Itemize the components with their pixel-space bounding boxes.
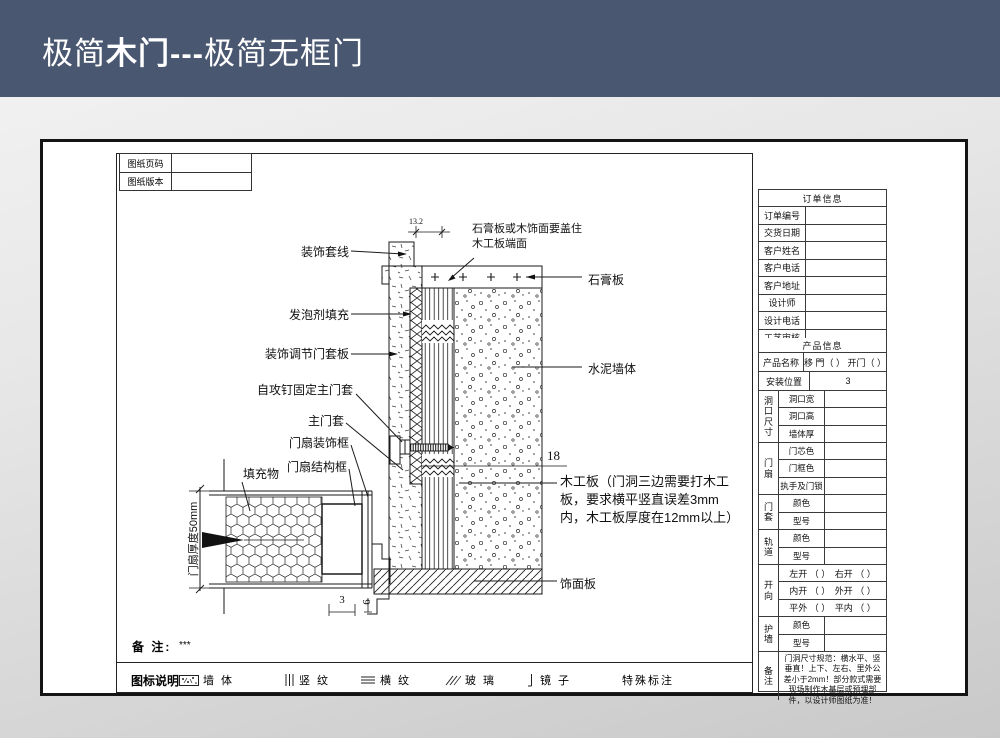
row-label: 颜色 [779, 530, 825, 547]
horizontal-grain-icon [360, 675, 376, 685]
row-label: 型号 [779, 548, 825, 565]
glass-icon [445, 675, 461, 686]
callout-foam-fill: 发泡剂填充 [289, 306, 349, 323]
meta-value [172, 173, 251, 190]
callout-plywood-note: 木工板（门洞三边需要打木工板，要求横平竖直误差3mm内，木工板厚度在12mm以上… [560, 473, 742, 527]
row-label: 颜色 [779, 495, 825, 512]
row-value [806, 242, 886, 259]
legend-item-glass: 玻 璃 [445, 672, 496, 688]
callout-leaf-deco-frame: 门扇装饰框 [289, 434, 349, 451]
table-row: 门芯色 [779, 443, 886, 459]
row-value [825, 635, 886, 652]
row-value [825, 460, 886, 476]
dimension-top: 13.2 [400, 217, 432, 226]
row-label: 产品名称 [759, 353, 804, 371]
row-label: 门框色 [779, 460, 825, 476]
callout-main-jamb: 主门套 [308, 412, 344, 429]
group-label: 备注 [759, 652, 779, 700]
table-row: 客户地址 [759, 276, 886, 294]
row-value [825, 391, 886, 407]
group-door-jamb: 门套 颜色 型号 [759, 494, 886, 529]
row-label: 交货日期 [759, 225, 806, 242]
legend-label: 特殊标注 [622, 672, 674, 688]
group-label: 轨道 [759, 530, 779, 564]
table-row: 颜色 [779, 617, 886, 634]
callout-filler: 填充物 [243, 465, 279, 482]
notes-value: *** [179, 640, 191, 651]
row-label: 客户地址 [759, 277, 806, 294]
row-label: 洞口宽 [779, 391, 825, 407]
row-value [825, 617, 886, 634]
group-label: 门套 [759, 495, 779, 529]
legend-item-special: 特殊标注 [622, 672, 674, 688]
row-value: 3 [810, 372, 886, 390]
row-value [806, 225, 886, 242]
table-row: 型号 [779, 634, 886, 652]
row-value [825, 426, 886, 442]
product-info-title: 产品信息 [759, 338, 886, 352]
group-open-direction: 开向 左开 （ ） 右开 （ ） 内开 （ ） 外开 （ ） 平外 （ ） 平内… [759, 564, 886, 616]
table-row: 型号 [779, 512, 886, 530]
group-remarks: 备注 门洞尺寸规范：横水平、竖垂直！上下、左右、里外公差小于2mm！部分款式需要… [759, 651, 886, 700]
row-value [825, 443, 886, 459]
title-suffix: 极简无框门 [204, 36, 364, 71]
legend-row: 图标说明: 墙 体 竖 纹 横 纹 玻 璃 镜 子 特殊标注 [117, 662, 752, 692]
table-row: 平外 （ ） 平内 （ ） [779, 599, 886, 616]
order-info-title: 订单信息 [759, 190, 886, 206]
table-row: 图纸页码 [120, 154, 251, 172]
table-row: 交货日期 [759, 224, 886, 242]
group-track: 轨道 颜色 型号 [759, 529, 886, 564]
table-row: 执手及门锁 [779, 477, 886, 494]
row-value [825, 530, 886, 547]
table-row: 客户电话 [759, 259, 886, 277]
table-row: 门框色 [779, 459, 886, 476]
callout-cement-wall: 水泥墙体 [588, 360, 636, 377]
row-value [825, 548, 886, 565]
table-row: 颜色 [779, 530, 886, 547]
table-row: 图纸版本 [120, 172, 251, 190]
row-value [825, 513, 886, 530]
row-label: 客户姓名 [759, 242, 806, 259]
row-label: 执手及门锁 [779, 478, 825, 494]
legend-label: 镜 子 [540, 672, 571, 688]
legend-label: 横 纹 [380, 672, 411, 688]
table-row: 客户姓名 [759, 241, 886, 259]
order-info-table: 订单信息 订单编号 交货日期 客户姓名 客户电话 客户地址 设计师 设计电话 工… [758, 189, 887, 340]
row-label: 设计电话 [759, 312, 806, 329]
legend-item-wall: 墙 体 [179, 672, 234, 688]
table-row: 内开 （ ） 外开 （ ） [779, 581, 886, 598]
row-label: 洞口高 [779, 408, 825, 424]
dimension-leaf-thickness: 门扇厚度50mm [185, 484, 199, 594]
table-row: 安装位置3 [759, 371, 886, 390]
row-label: 订单编号 [759, 207, 806, 224]
table-row: 产品名称移 門（ ） 开门（ ） [759, 352, 886, 371]
legend-label: 竖 纹 [299, 672, 330, 688]
row-label: 墙体厚 [779, 426, 825, 442]
row-label: 客户电话 [759, 260, 806, 277]
row-value [806, 260, 886, 277]
title-prefix: 极简 [42, 36, 106, 71]
notes-row: 备 注: *** [117, 632, 752, 662]
drawing-paper: 图纸页码 图纸版本 装饰套线 发泡剂填充 装饰调节门套板 自攻钉固定主门套 主门… [40, 139, 968, 696]
row-label: 颜色 [779, 617, 825, 634]
table-row: 洞口宽 [779, 391, 886, 407]
row-value [825, 495, 886, 512]
row-value [806, 295, 886, 312]
meta-value [172, 154, 251, 172]
dimension-board-thickness: 18 [547, 448, 560, 464]
notes-label: 备 注: [132, 638, 171, 655]
callout-leaf-struct-frame: 门扇结构框 [287, 458, 347, 475]
group-label: 门扇 [759, 443, 779, 494]
legend-item-vertical-grain: 竖 纹 [284, 672, 330, 688]
page-title: 极简木门---极简无框门 [42, 28, 364, 73]
title-bold: 木门--- [106, 36, 204, 71]
table-row: 左开 （ ） 右开 （ ） [779, 565, 886, 581]
row-label: 型号 [779, 635, 825, 652]
row-label: 型号 [779, 513, 825, 530]
table-row: 设计师 [759, 294, 886, 312]
group-label: 开向 [759, 565, 779, 616]
group-label: 洞口尺寸 [759, 391, 779, 442]
row-value [806, 207, 886, 224]
technical-drawing [117, 154, 751, 691]
slide-header: 极简木门---极简无框门 [0, 0, 1000, 97]
callout-veneer-panel: 饰面板 [560, 575, 596, 592]
table-row: 订单编号 [759, 206, 886, 224]
drawing-frame: 图纸页码 图纸版本 装饰套线 发泡剂填充 装饰调节门套板 自攻钉固定主门套 主门… [116, 153, 753, 693]
callout-adjust-panel: 装饰调节门套板 [265, 345, 349, 362]
row-label: 设计师 [759, 295, 806, 312]
row-value: 移 門（ ） 开门（ ） [804, 353, 886, 371]
vertical-grain-icon [284, 673, 295, 687]
mirror-icon [527, 673, 536, 687]
table-row: 设计电话 [759, 311, 886, 329]
table-row: 洞口高 [779, 407, 886, 424]
callout-cover-note: 石膏板或木饰面要盖住木工板端面 [472, 222, 588, 252]
callout-trim-line: 装饰套线 [301, 243, 349, 260]
callout-gypsum-board: 石膏板 [588, 271, 624, 288]
product-info-table: 产品信息 产品名称移 門（ ） 开门（ ） 安装位置3 洞口尺寸 洞口宽 洞口高… [758, 338, 887, 692]
table-row: 墙体厚 [779, 425, 886, 442]
wall-hatch-icon [179, 675, 199, 686]
table-row: 颜色 [779, 495, 886, 512]
sheet-meta-table: 图纸页码 图纸版本 [119, 153, 252, 191]
legend-label: 墙 体 [203, 672, 234, 688]
callout-screw-fixing: 自攻钉固定主门套 [257, 381, 353, 398]
meta-label: 图纸页码 [120, 154, 172, 172]
dimension-gap-3: 3 [334, 594, 350, 606]
row-value [825, 408, 886, 424]
group-door-leaf: 门扇 门芯色 门框色 执手及门锁 [759, 442, 886, 494]
row-label: 安装位置 [759, 372, 810, 390]
legend-label: 玻 璃 [465, 672, 496, 688]
group-label: 护墙 [759, 617, 779, 651]
row-value [806, 277, 886, 294]
legend-title: 图标说明: [131, 672, 183, 689]
legend-item-horizontal-grain: 横 纹 [360, 672, 411, 688]
meta-label: 图纸版本 [120, 173, 172, 190]
group-opening-size: 洞口尺寸 洞口宽 洞口高 墙体厚 [759, 390, 886, 442]
table-row: 型号 [779, 547, 886, 565]
row-label: 门芯色 [779, 443, 825, 459]
legend-item-mirror: 镜 子 [527, 672, 571, 688]
row-value [825, 478, 886, 494]
group-wall-panel: 护墙 颜色 型号 [759, 616, 886, 651]
dimension-gap-6: 6 [361, 599, 373, 605]
remarks-note: 门洞尺寸规范：横水平、竖垂直！上下、左右、里外公差小于2mm！部分款式需要现场制… [779, 652, 886, 708]
row-value [806, 312, 886, 329]
